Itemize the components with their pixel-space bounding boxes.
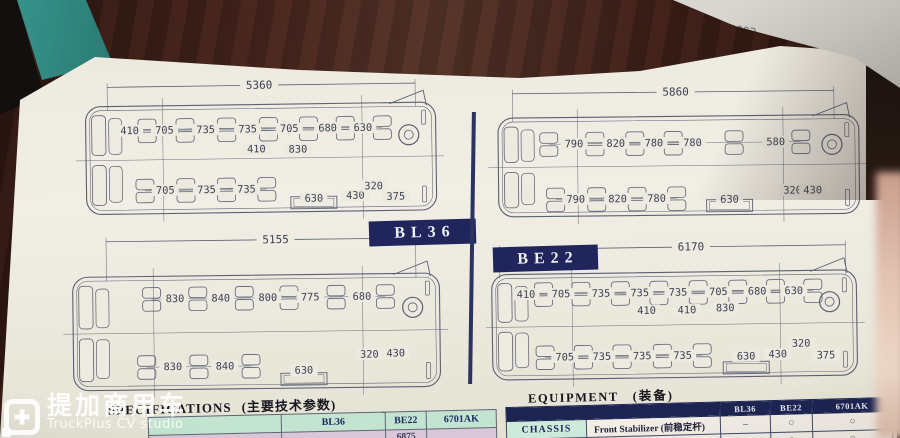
equipment-heading-en: EQUIPMENT — [528, 390, 619, 406]
bus-floorplan-5360: 5360410705735735705680630705735735410830… — [57, 73, 459, 233]
svg-text:410: 410 — [678, 304, 697, 316]
svg-text:680: 680 — [353, 291, 372, 303]
equipment-partial-value-be22: ○ — [771, 432, 813, 438]
svg-text:580: 580 — [766, 136, 785, 148]
svg-text:735: 735 — [237, 183, 256, 195]
watermark-chinese: 提加商用车 — [47, 392, 187, 419]
svg-text:735: 735 — [592, 288, 611, 300]
watermark: 提加商用车 TruckPlus CV studio — [4, 392, 187, 435]
svg-text:410: 410 — [120, 125, 139, 137]
equipment-partial-value-bl36: ○ — [721, 433, 771, 438]
svg-text:800: 800 — [258, 292, 277, 304]
svg-text:790: 790 — [566, 194, 585, 206]
svg-text:735: 735 — [633, 350, 652, 362]
svg-text:830: 830 — [166, 293, 185, 305]
svg-text:735: 735 — [592, 351, 611, 363]
background-blur-object — [876, 172, 900, 438]
svg-text:735: 735 — [197, 184, 216, 196]
truckplus-logo-icon — [4, 399, 40, 435]
svg-text:840: 840 — [216, 360, 235, 372]
svg-text:780: 780 — [683, 137, 702, 149]
svg-text:840: 840 — [211, 292, 230, 304]
svg-text:705: 705 — [155, 125, 174, 137]
svg-text:375: 375 — [817, 349, 836, 361]
svg-text:320: 320 — [360, 349, 379, 361]
spec-header-6701ak: 6701AK — [426, 410, 496, 430]
spec-header-be22: BE22 — [385, 411, 426, 430]
svg-text:430: 430 — [768, 348, 787, 360]
svg-text:630: 630 — [295, 364, 314, 376]
svg-text:830: 830 — [716, 302, 735, 314]
svg-text:430: 430 — [803, 184, 822, 196]
spec-cell-bl36 — [282, 430, 386, 438]
watermark-text: 提加商用车 TruckPlus CV studio — [47, 392, 187, 435]
svg-text:410: 410 — [517, 289, 536, 301]
spec-cell-6701ak — [427, 428, 497, 438]
svg-text:5360: 5360 — [246, 79, 273, 92]
logo-corner-chip — [2, 428, 11, 437]
model-badge-bl36: BL36 — [369, 219, 477, 247]
svg-text:5860: 5860 — [662, 85, 689, 98]
svg-text:735: 735 — [238, 123, 257, 135]
svg-text:820: 820 — [608, 193, 627, 205]
svg-text:630: 630 — [784, 285, 803, 297]
spec-heading-cn: (主要技术参数) — [241, 397, 336, 414]
svg-text:375: 375 — [386, 191, 405, 203]
bus-floorplan-5155: 5155830840800775680830840630320430 — [55, 225, 481, 398]
spec-header-bl36: BL36 — [281, 412, 385, 432]
model-badge-be22: BE22 — [493, 245, 599, 273]
svg-text:410: 410 — [637, 305, 656, 317]
svg-text:820: 820 — [606, 138, 625, 150]
svg-text:790: 790 — [565, 138, 584, 150]
svg-text:320: 320 — [364, 180, 383, 192]
svg-text:705: 705 — [555, 351, 574, 363]
svg-text:780: 780 — [647, 193, 666, 205]
svg-text:630: 630 — [737, 350, 756, 362]
svg-text:735: 735 — [673, 350, 692, 362]
equipment-value-be22: ○ — [770, 414, 812, 433]
svg-text:735: 735 — [630, 287, 649, 299]
equipment-heading-cn: (装备) — [632, 388, 674, 403]
svg-text:735: 735 — [669, 287, 688, 299]
svg-text:630: 630 — [304, 192, 323, 204]
watermark-english: TruckPlus CV studio — [47, 417, 187, 432]
svg-text:630: 630 — [353, 122, 372, 134]
svg-text:780: 780 — [645, 137, 664, 149]
svg-text:705: 705 — [280, 123, 299, 135]
svg-text:830: 830 — [163, 361, 182, 373]
svg-text:6170: 6170 — [678, 240, 705, 253]
svg-text:775: 775 — [301, 291, 320, 303]
svg-text:705: 705 — [156, 185, 175, 197]
svg-text:430: 430 — [386, 347, 405, 359]
svg-text:830: 830 — [289, 143, 308, 155]
equipment-value-bl36: – — [720, 415, 770, 434]
svg-text:410: 410 — [247, 143, 266, 155]
svg-text:320: 320 — [792, 337, 811, 349]
bus-floorplan-5860: 5860790820780780580790820780630320430 — [485, 80, 897, 236]
svg-text:705: 705 — [709, 286, 728, 298]
svg-text:5155: 5155 — [262, 233, 289, 246]
svg-text:680: 680 — [318, 122, 337, 134]
svg-text:705: 705 — [552, 288, 571, 300]
spec-cell-be22: 6875 — [386, 429, 427, 438]
equipment-header-be22: BE22 — [770, 400, 812, 415]
equipment-group-chassis: CHASSIS — [506, 419, 586, 438]
svg-text:735: 735 — [196, 124, 215, 136]
equipment-header-bl36: BL36 — [720, 401, 770, 416]
svg-text:680: 680 — [748, 285, 767, 297]
svg-text:630: 630 — [720, 194, 739, 206]
